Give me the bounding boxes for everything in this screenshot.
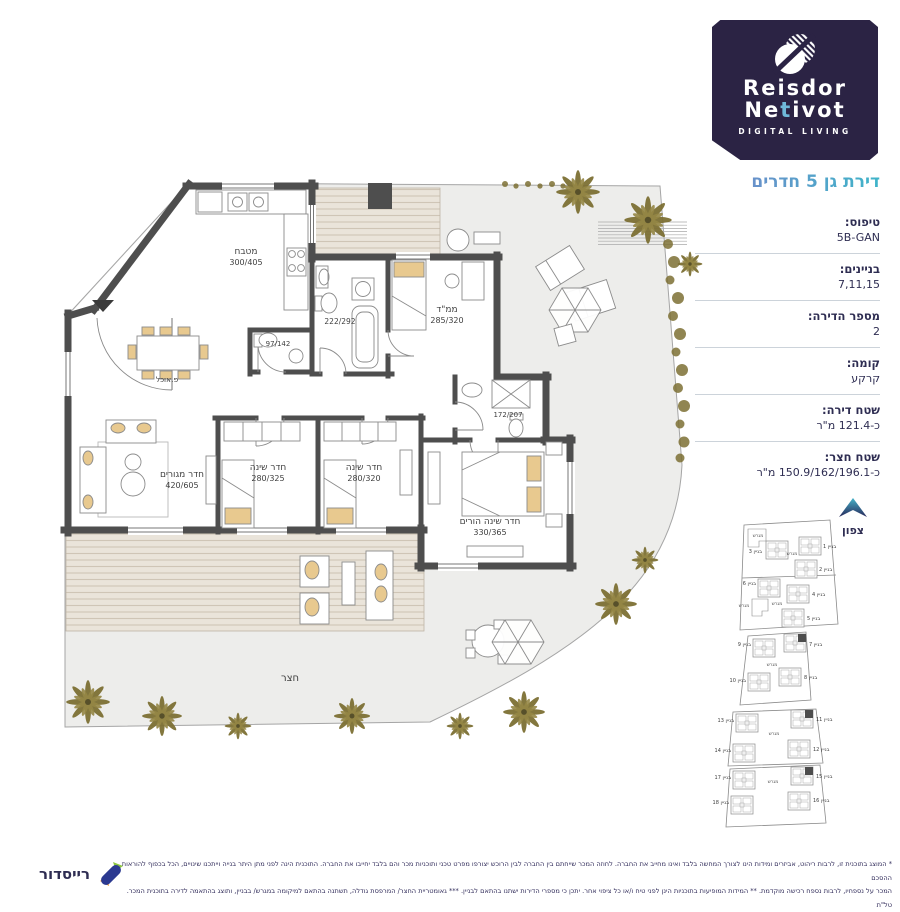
footer-logo-icon: [96, 859, 126, 889]
plot-label: מגרש: [767, 663, 778, 668]
room-dims-master: 330/365: [473, 528, 506, 537]
room-dims-bath: 222/292: [324, 317, 355, 326]
plot-label: מגרש: [772, 602, 783, 607]
brand-logo-box: Reisdor Netivot DIGITAL LIVING: [712, 20, 878, 160]
building-unit: [787, 585, 809, 603]
building-unit: [795, 560, 817, 578]
building-unit: [766, 541, 788, 559]
building-unit: [748, 673, 770, 691]
plot-label: מגרש: [753, 534, 764, 539]
building-label: בניין 13: [718, 718, 735, 724]
room-dims-living: 420/605: [165, 481, 198, 490]
building-unit: [779, 668, 801, 686]
detail-value: 2: [695, 325, 880, 338]
building-label: בניין 8: [804, 675, 817, 681]
room-dims-shower: 172/207: [493, 411, 522, 419]
building-label: בניין 10: [730, 678, 747, 684]
room-dims-bedroom2: 280/320: [347, 474, 380, 483]
plot-label: מגרש: [768, 780, 779, 785]
room-dims-bedroom1: 280/325: [251, 474, 284, 483]
building-label: בניין 3: [749, 549, 762, 555]
detail-label: טיפוס:: [695, 215, 880, 229]
detail-value: כ-150.9/162/196.1 מ"ר: [695, 466, 880, 479]
highlighted-unit-marker: [805, 767, 813, 775]
brand-name-line2-post: ivot: [792, 98, 845, 122]
room-dims-wc: 97/142: [266, 340, 291, 348]
room-label-kitchen: מטבח: [234, 247, 257, 257]
details-panel: טיפוס: 5B-GAN בניינים: 7,11,15 מספר הדיר…: [695, 207, 880, 488]
plot-label: מגרש: [769, 732, 780, 737]
building-label: בניין 14: [715, 748, 732, 754]
room-label-dining: פ.אוכל: [156, 375, 179, 384]
brand-name: Reisdor Netivot: [743, 78, 847, 122]
room-label-master: חדר שינה הורים: [460, 517, 521, 527]
detail-row-floor: קומה: קרקע: [695, 348, 880, 395]
detail-label: מספר הדירה:: [695, 309, 880, 323]
building-label: בניין 7: [809, 642, 822, 648]
building-unit: [788, 740, 810, 758]
detail-label: שטח דירה:: [695, 403, 880, 417]
building-label: בניין 15: [816, 774, 833, 780]
room-label-bedroom2: חדר שינה: [346, 463, 383, 473]
building-label: בניין 4: [812, 592, 825, 598]
apartment-title: דירת גן 5 חדרים: [695, 172, 880, 192]
building-label: בניין 17: [715, 775, 732, 781]
disclaimer-line1: * המוצג בתוכנית זו, לרבות ריהוט, אביזרים…: [110, 858, 892, 885]
plot-label: מגרש: [787, 552, 798, 557]
building-label: בניין 16: [813, 798, 830, 804]
yard-label: חצר: [281, 673, 299, 684]
detail-label: קומה:: [695, 356, 880, 370]
building-label: בניין 9: [738, 642, 751, 648]
detail-row-yard-area: שטח חצר: כ-150.9/162/196.1 מ"ר: [695, 442, 880, 488]
detail-row-buildings: בניינים: 7,11,15: [695, 254, 880, 301]
brand-name-line1: Reisdor: [743, 76, 847, 100]
building-label: בניין 18: [713, 800, 730, 806]
floor-plan: מטבח 300/405 ממ"ד 285/320 חדר שינה 280/3…: [48, 158, 708, 743]
footer-disclaimer: * המוצג בתוכנית זו, לרבות ריהוט, אביזרים…: [110, 858, 892, 912]
footer-logo-text: רייסדור: [39, 865, 90, 883]
detail-row-type: טיפוס: 5B-GAN: [695, 207, 880, 254]
detail-value: 5B-GAN: [695, 231, 880, 244]
room-label-living: חדר מגורים: [160, 470, 204, 480]
brand-name-line2-pre: Ne: [744, 98, 780, 122]
room-label-mamad: ממ"ד: [436, 305, 457, 315]
building-label: בניין 6: [743, 581, 756, 587]
building-label: בניין 1: [823, 544, 836, 550]
disclaimer-line2: המכר על נספחיו, לרבות נספח רכישה מוקדמת.…: [110, 885, 892, 912]
highlighted-unit-marker: [798, 634, 806, 642]
room-dims-kitchen: 300/405: [229, 258, 262, 267]
room-label-bedroom1: חדר שינה: [250, 463, 287, 473]
detail-label: בניינים:: [695, 262, 880, 276]
detail-row-apartment-area: שטח דירה: כ-121.4 מ"ר: [695, 395, 880, 442]
building-label: בניין 11: [816, 717, 833, 723]
detail-label: שטח חצר:: [695, 450, 880, 464]
plot-label: מגרש: [739, 604, 750, 609]
building-unit: [753, 639, 775, 657]
building-unit: [782, 609, 804, 627]
detail-row-apartment-number: מספר הדירה: 2: [695, 301, 880, 348]
site-plan: בניין 1 בניין 2 בניין 3 בניין 4 בניין 5 …: [698, 515, 878, 830]
floorplan-sheet: { "brand": { "name_line1": "Reisdor", "n…: [0, 0, 900, 900]
building-unit: [733, 744, 755, 762]
building-unit: [758, 579, 780, 597]
building-unit: [736, 714, 758, 732]
brand-mark-icon: [769, 32, 821, 78]
footer-logo: רייסדור: [14, 854, 126, 894]
building-label: בניין 5: [807, 616, 820, 622]
pillar: [368, 183, 392, 209]
building-unit: [788, 792, 810, 810]
building-label: בניין 12: [813, 747, 830, 753]
ac-unit-icon: [447, 229, 469, 251]
building-label: בניין 2: [819, 567, 832, 573]
detail-value: 7,11,15: [695, 278, 880, 291]
room-dims-mamad: 285/320: [430, 316, 463, 325]
ac-unit-icon: [474, 232, 500, 244]
building-unit: [799, 537, 821, 555]
detail-value: קרקע: [695, 372, 880, 385]
building-unit: [731, 796, 753, 814]
building-unit: [733, 771, 755, 789]
brand-name-line2-accent: t: [780, 98, 792, 122]
brand-tagline: DIGITAL LIVING: [738, 127, 851, 136]
highlighted-unit-marker: [805, 710, 813, 718]
detail-value: כ-121.4 מ"ר: [695, 419, 880, 432]
